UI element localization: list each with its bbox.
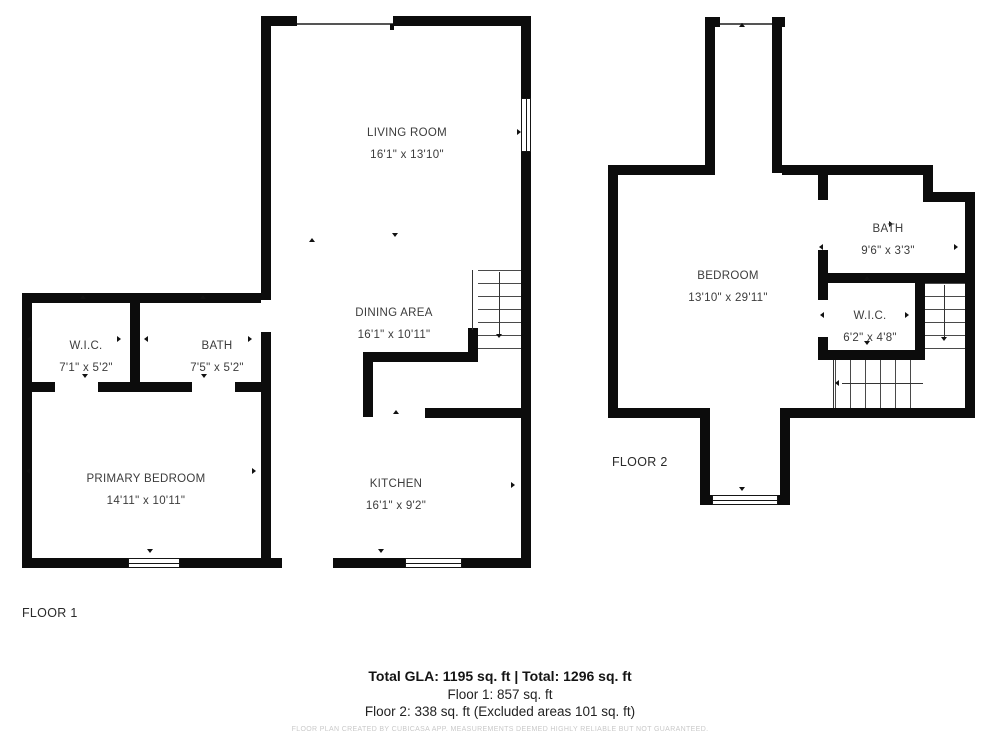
- room-label-bath-f2: BATH 9'6" x 3'3": [861, 218, 915, 262]
- measure-arrow-icon: [739, 23, 745, 27]
- stair-rail-line: [833, 360, 834, 408]
- room-label-wic-f2: W.I.C. 6'2" x 4'8": [843, 305, 897, 349]
- room-dimensions: 13'10" x 29'11": [688, 287, 768, 309]
- wall: [818, 175, 828, 200]
- wall: [965, 192, 975, 418]
- measure-arrow-icon: [819, 244, 823, 250]
- stair-down-arrow-icon: [941, 337, 947, 341]
- measure-arrow-icon: [954, 244, 958, 250]
- total-gla-line: Total GLA: 1195 sq. ft | Total: 1296 sq.…: [0, 668, 1000, 686]
- floor2-plan: BEDROOM 13'10" x 29'11" BATH 9'6" x 3'3"…: [0, 0, 1000, 750]
- area-summary: Total GLA: 1195 sq. ft | Total: 1296 sq.…: [0, 668, 1000, 721]
- room-label-bedroom-f2: BEDROOM 13'10" x 29'11": [688, 265, 768, 309]
- floor2-area-line: Floor 2: 338 sq. ft (Excluded areas 101 …: [0, 703, 1000, 721]
- wall: [608, 165, 618, 418]
- stair-direction-line: [842, 383, 923, 384]
- wall: [818, 283, 828, 300]
- floor1-area-line: Floor 1: 857 sq. ft: [0, 686, 1000, 704]
- floorplan-canvas: LIVING ROOM 16'1" x 13'10" DINING AREA 1…: [0, 0, 1000, 750]
- wall: [778, 495, 790, 505]
- stair-direction-line: [944, 285, 945, 337]
- room-name: BEDROOM: [688, 265, 768, 287]
- room-dimensions: 6'2" x 4'8": [843, 327, 897, 349]
- stair-left-arrow-icon: [835, 380, 839, 386]
- measure-arrow-icon: [905, 312, 909, 318]
- wall: [705, 17, 715, 173]
- window: [712, 495, 778, 505]
- wall: [780, 408, 975, 418]
- wall: [782, 165, 933, 175]
- opening-threshold: [720, 23, 772, 25]
- floor2-label: FLOOR 2: [612, 455, 668, 469]
- wall: [818, 273, 975, 283]
- room-name: BATH: [861, 218, 915, 240]
- staircase-floor2-lower-flight: [835, 360, 923, 408]
- wall: [700, 495, 712, 505]
- wall: [780, 408, 790, 505]
- room-name: W.I.C.: [843, 305, 897, 327]
- wall: [772, 17, 782, 173]
- wall: [608, 165, 715, 175]
- measure-arrow-icon: [739, 487, 745, 491]
- disclaimer-text: FLOOR PLAN CREATED BY CUBICASA APP. MEAS…: [0, 726, 1000, 733]
- wall: [700, 408, 710, 505]
- measure-arrow-icon: [820, 312, 824, 318]
- wall: [608, 408, 710, 418]
- wall: [818, 350, 925, 360]
- measure-arrow-icon: [864, 276, 870, 280]
- room-dimensions: 9'6" x 3'3": [861, 240, 915, 262]
- wall: [915, 273, 925, 360]
